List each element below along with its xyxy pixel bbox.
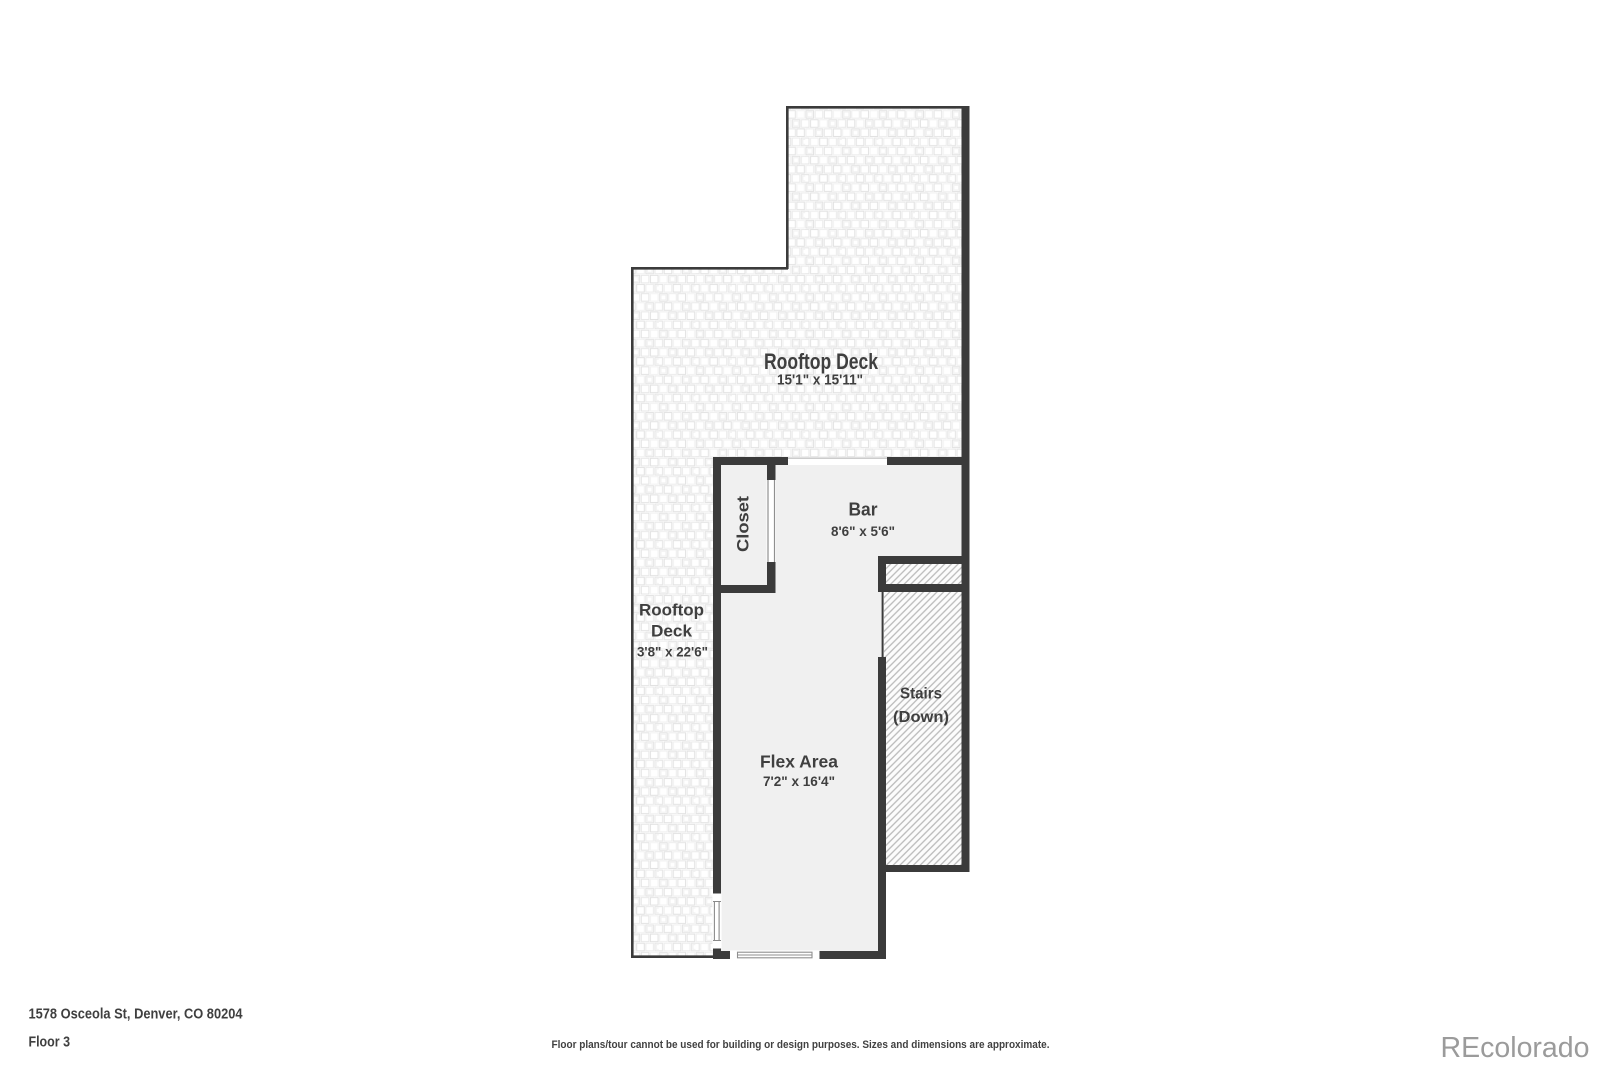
svg-text:7'2" x 16'4": 7'2" x 16'4" — [763, 773, 835, 789]
svg-text:3'8" x 22'6": 3'8" x 22'6" — [637, 644, 708, 660]
svg-text:Deck: Deck — [651, 623, 693, 641]
svg-text:Flex Area: Flex Area — [760, 752, 838, 772]
svg-text:15'1" x 15'11": 15'1" x 15'11" — [777, 372, 863, 389]
svg-text:Stairs: Stairs — [900, 685, 942, 702]
svg-text:(Down): (Down) — [893, 709, 949, 726]
svg-text:Bar: Bar — [849, 499, 878, 519]
svg-text:Rooftop Deck: Rooftop Deck — [764, 349, 879, 374]
svg-text:8'6" x 5'6": 8'6" x 5'6" — [831, 523, 895, 539]
svg-text:Floor 3: Floor 3 — [29, 1035, 71, 1051]
svg-text:Closet: Closet — [734, 496, 753, 552]
svg-text:1578 Osceola St, Denver, CO 80: 1578 Osceola St, Denver, CO 80204 — [29, 1007, 243, 1023]
svg-text:Floor plans/tour cannot be use: Floor plans/tour cannot be used for buil… — [552, 1039, 1050, 1051]
svg-text:REcolorado: REcolorado — [1441, 1032, 1590, 1064]
svg-text:Rooftop: Rooftop — [639, 602, 704, 620]
